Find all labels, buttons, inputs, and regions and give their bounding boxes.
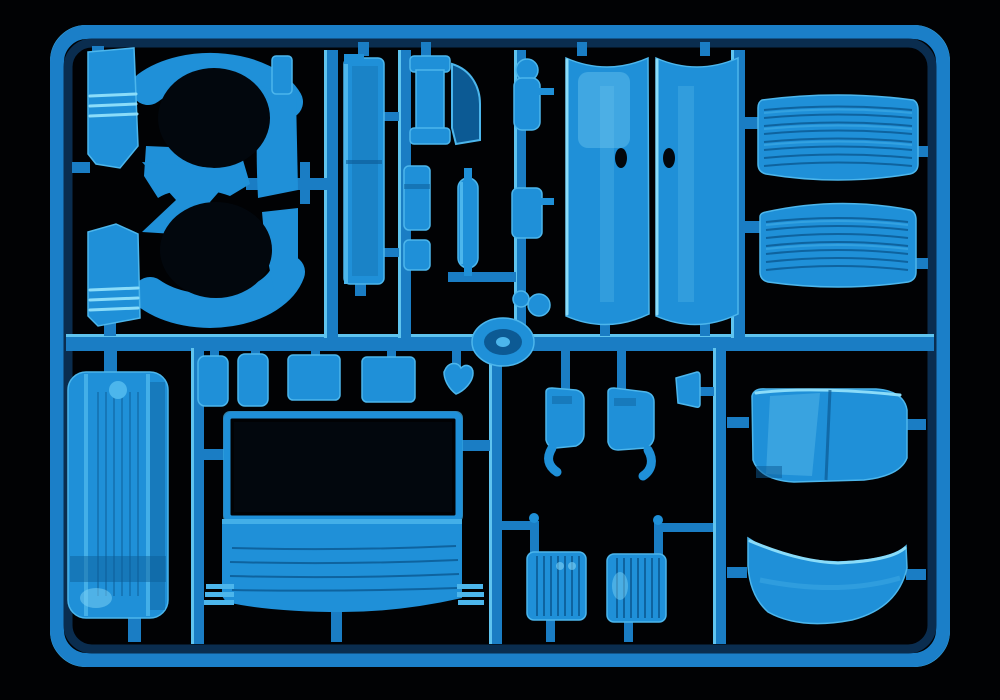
wheel-arch-opening (160, 202, 272, 298)
step-highlight (568, 562, 576, 570)
gate-stub (502, 521, 530, 530)
step-highlight (556, 562, 564, 570)
deflector-sheen (766, 393, 820, 476)
mirror-arm-body (514, 78, 540, 130)
gate-stub (727, 567, 747, 578)
gate-stub (700, 42, 710, 56)
sprue-photo: Injection-molded plastic model kit sprue… (0, 0, 1000, 700)
spool-bottom-flange (410, 128, 450, 144)
chain-knob (528, 294, 550, 316)
door-panel (656, 58, 738, 325)
runner-highlight (489, 348, 492, 644)
bracket-body (608, 388, 654, 450)
gate-stub (72, 162, 90, 173)
rib-line (90, 298, 138, 300)
gate-stub (577, 42, 587, 56)
sprue-scene: Injection-molded plastic model kit sprue… (0, 0, 1000, 700)
tank-lower-band (70, 556, 166, 582)
door-sheen (600, 86, 614, 302)
storage-box-large (362, 357, 415, 402)
gate-stub (421, 42, 431, 56)
capsule-tip (464, 168, 472, 182)
cab-side-stripe (204, 600, 234, 605)
cab-lower-panel (222, 519, 462, 612)
door-sheen (678, 86, 694, 302)
storage-box-small (238, 354, 268, 406)
part-wedge (676, 372, 700, 407)
rib-line (90, 104, 136, 106)
side-panel-seam (346, 160, 382, 164)
cab-side-stripe (457, 584, 483, 589)
windshield-opening (234, 422, 452, 512)
cab-side-stripe (458, 600, 484, 605)
cab-side-stripe (457, 592, 484, 597)
deflector-notch (756, 466, 782, 478)
gate-stub (530, 521, 539, 554)
step-plate (527, 552, 586, 620)
step-highlight (612, 572, 628, 600)
storage-box-small (198, 356, 228, 406)
tank-filler-cap (109, 381, 127, 399)
bracket-notch (552, 396, 572, 404)
rib-line (90, 308, 138, 310)
gate-stub (654, 523, 663, 556)
side-panel-edge (344, 58, 348, 284)
rib-line (90, 94, 136, 96)
gate-stub (448, 272, 516, 282)
chain-knob (513, 291, 529, 307)
bracket-notch (614, 398, 636, 406)
spool-waist (416, 70, 444, 130)
part-door-right (656, 58, 738, 325)
part-cab-front (204, 412, 484, 612)
runner-highlight (398, 50, 401, 338)
cab-panel-top-edge (222, 519, 462, 524)
wedge-body (676, 372, 700, 407)
cross-gate (300, 162, 310, 204)
rib-line (90, 114, 137, 116)
gate-stub (358, 42, 369, 56)
chain-arm-stub (540, 198, 554, 205)
part-grille-upper (758, 95, 918, 180)
tank-end-highlight (80, 588, 112, 608)
gate-stub (663, 523, 713, 532)
part-wheel-disc (472, 318, 534, 366)
stem-knob (653, 515, 663, 525)
gate-stub (617, 351, 626, 393)
gate-stub (906, 419, 926, 430)
gate-stub (104, 350, 117, 374)
gate-stub (624, 620, 633, 642)
gate-stub (459, 440, 490, 451)
disc-hub (496, 337, 510, 347)
chain-mid-part (512, 188, 542, 238)
gate-stub (906, 569, 926, 580)
fender-side-face (88, 48, 138, 168)
gate-stub (700, 387, 714, 396)
door-handle-hole (663, 148, 675, 168)
part-grille-lower (760, 203, 916, 287)
gate-stub (331, 610, 342, 642)
small-bracket-b (404, 240, 430, 270)
capsule-highlight (460, 182, 463, 264)
part-fuel-tank (68, 372, 168, 618)
cab-side-stripe (206, 584, 234, 589)
side-panel-tab (344, 54, 364, 64)
rib-line (90, 288, 138, 290)
small-bracket-a (404, 166, 430, 230)
part-roof-deflector (752, 389, 907, 482)
bracket-notch (404, 184, 430, 189)
capsule-tip (464, 264, 472, 276)
storage-box-large (288, 355, 340, 400)
mirror-arm-stub (538, 88, 554, 95)
runner-highlight (191, 348, 194, 644)
fender-top-tab (272, 56, 292, 94)
runner-highlight (324, 50, 327, 338)
side-panel-shading (352, 66, 378, 276)
cab-side-stripe (205, 592, 234, 597)
gate-stub (727, 417, 749, 428)
door-handle-hole (615, 148, 627, 168)
wheel-arch-opening (158, 68, 270, 168)
stem-knob (529, 513, 539, 523)
part-side-panel (344, 54, 384, 284)
gate-stub (561, 351, 570, 393)
part-door-left (566, 58, 649, 325)
